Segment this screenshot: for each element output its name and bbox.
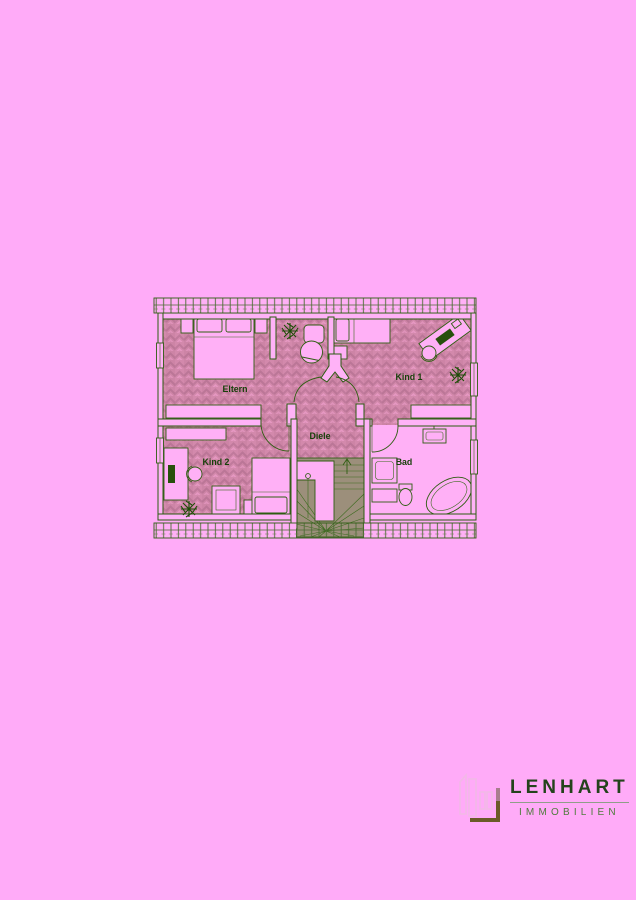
bed-pillow — [226, 319, 251, 332]
room-label-kind2: Kind 2 — [203, 457, 230, 467]
wall-bottom-right — [364, 514, 476, 520]
desk-chair — [421, 346, 437, 361]
desk — [164, 448, 188, 500]
floorplan-svg: Eltern Kind 1 Kind 2 Diele Bad — [148, 288, 490, 556]
wall-right — [471, 313, 476, 520]
sideboard — [166, 428, 226, 440]
room-label-diele: Diele — [309, 431, 330, 441]
plant-icon — [282, 323, 298, 339]
bed-pillow — [197, 319, 222, 332]
floorplan: Eltern Kind 1 Kind 2 Diele Bad — [148, 288, 490, 556]
wall-stair-left — [291, 419, 297, 529]
room-label-kind1: Kind 1 — [396, 372, 423, 382]
bath-cabinet — [372, 489, 397, 502]
sideboard — [166, 405, 261, 418]
bed-pillow — [255, 497, 287, 513]
room-label-bad: Bad — [396, 457, 413, 467]
brand-tagline: IMMOBILIEN — [519, 807, 620, 818]
wall-eltern-right — [270, 317, 276, 359]
wall-bottom-left — [158, 514, 296, 520]
wall-top — [158, 313, 476, 319]
logo-mark-buildings — [460, 775, 492, 816]
toilet — [399, 484, 412, 506]
wall-kind1-left — [328, 317, 334, 359]
washbasin — [423, 429, 446, 443]
logo-mark-icon — [455, 769, 501, 825]
plant-icon — [181, 501, 197, 517]
page: { "page": { "background_color": "#ffabf8… — [0, 0, 636, 900]
logo-text: LENHART IMMOBILIEN — [510, 777, 629, 818]
wall-bad-top-b — [398, 419, 476, 426]
room-label-eltern: Eltern — [223, 384, 248, 394]
desk-chair — [187, 466, 202, 482]
roof-edge-top — [154, 298, 476, 313]
wall-eltern-kind2 — [158, 419, 261, 426]
side-table — [304, 325, 324, 343]
company-logo: LENHART IMMOBILIEN — [455, 769, 629, 825]
bed-pillow — [336, 319, 349, 341]
armchair — [301, 341, 323, 363]
sideboard — [411, 405, 471, 418]
roof-edge-bottom — [154, 523, 476, 538]
monitor — [168, 465, 175, 483]
plant-icon — [450, 367, 466, 383]
brand-name: LENHART — [510, 777, 629, 799]
wall-stair-right — [364, 419, 370, 529]
logo-divider — [510, 802, 629, 803]
